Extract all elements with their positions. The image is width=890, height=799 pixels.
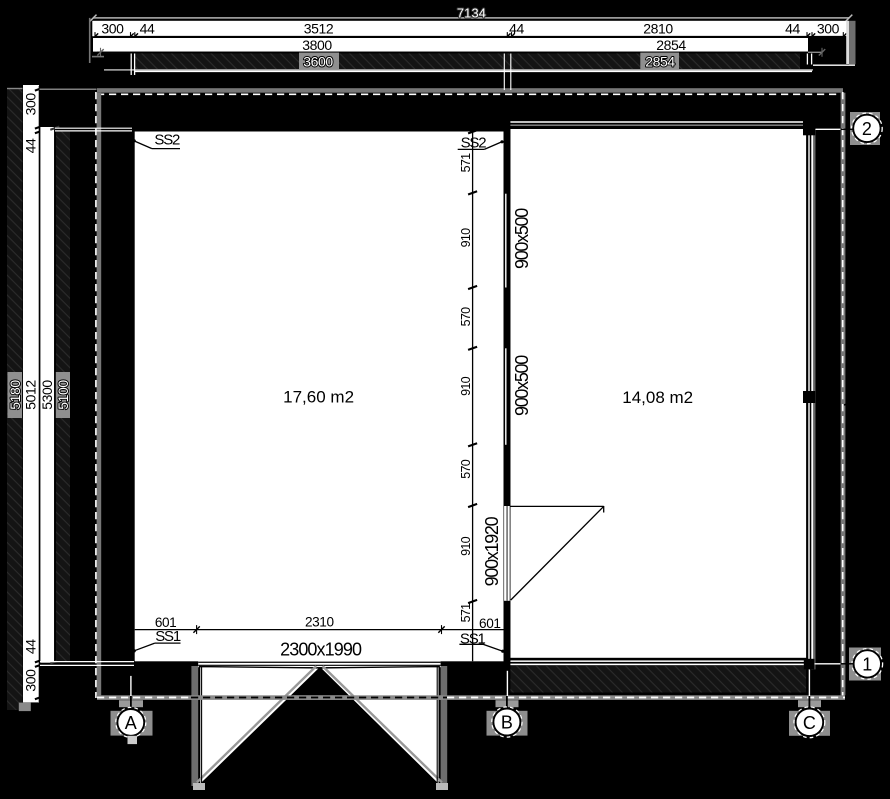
svg-text:7134: 7134 [457, 6, 486, 21]
svg-text:300: 300 [23, 93, 39, 116]
svg-text:A: A [125, 713, 137, 733]
svg-text:44: 44 [509, 20, 524, 36]
svg-text:300: 300 [817, 21, 840, 37]
svg-text:2854: 2854 [645, 53, 675, 69]
svg-text:3600: 3600 [303, 54, 333, 70]
svg-text:910: 910 [459, 228, 473, 248]
svg-text:5100: 5100 [55, 380, 71, 410]
svg-text:SS1: SS1 [460, 631, 486, 648]
svg-text:2310: 2310 [305, 614, 334, 629]
svg-text:2300x1990: 2300x1990 [280, 639, 362, 659]
svg-text:571: 571 [459, 153, 473, 173]
svg-text:570: 570 [459, 459, 473, 479]
svg-text:3512: 3512 [304, 20, 334, 36]
svg-text:2854: 2854 [656, 37, 686, 53]
svg-text:3800: 3800 [302, 37, 332, 53]
svg-text:2810: 2810 [643, 20, 673, 36]
svg-text:44: 44 [23, 138, 39, 153]
svg-text:601: 601 [479, 616, 500, 631]
svg-text:44: 44 [785, 21, 800, 37]
svg-text:SS2: SS2 [154, 132, 180, 149]
svg-text:5300: 5300 [39, 380, 55, 410]
svg-text:5180: 5180 [7, 380, 23, 410]
svg-text:910: 910 [459, 376, 473, 396]
svg-text:44: 44 [23, 639, 39, 654]
svg-text:2: 2 [862, 119, 872, 139]
svg-text:900x1920: 900x1920 [482, 516, 502, 586]
svg-text:571: 571 [459, 603, 473, 623]
svg-text:5012: 5012 [23, 380, 39, 410]
svg-text:300: 300 [101, 21, 124, 37]
svg-text:B: B [501, 713, 513, 733]
svg-text:14,08 m2: 14,08 m2 [622, 388, 693, 407]
svg-text:910: 910 [459, 536, 473, 556]
svg-text:SS1: SS1 [155, 628, 181, 645]
svg-text:900x500: 900x500 [512, 355, 532, 416]
svg-text:900x500: 900x500 [512, 208, 532, 269]
svg-text:300: 300 [23, 669, 39, 692]
svg-text:44: 44 [140, 21, 155, 37]
svg-text:1: 1 [862, 654, 872, 674]
svg-text:17,60 m2: 17,60 m2 [283, 387, 354, 406]
svg-text:C: C [803, 713, 816, 733]
svg-text:570: 570 [459, 307, 473, 327]
